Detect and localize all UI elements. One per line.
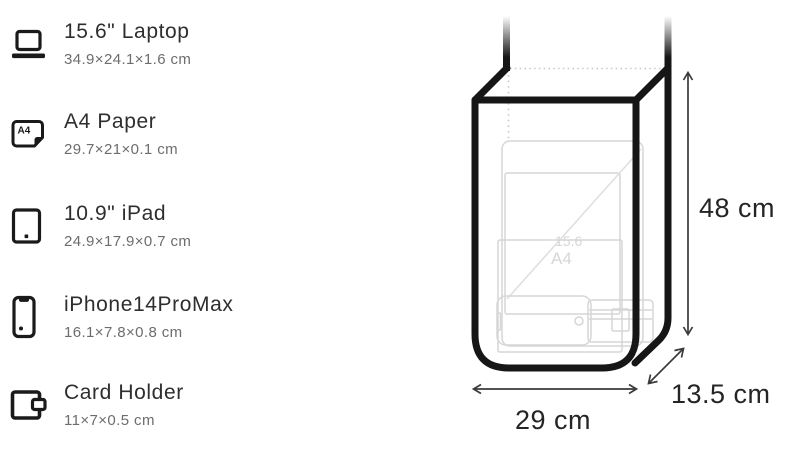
item-dims: 11×7×0.5 cm — [64, 412, 184, 429]
ghost-laptop-diagonal — [507, 149, 641, 299]
ghost-a4-label: A4 — [551, 249, 572, 268]
list-item: 10.9" iPad 24.9×17.9×0.7 cm — [10, 202, 191, 250]
bag-top-right-edge — [636, 68, 668, 100]
fits-inside-list: 15.6" Laptop 34.9×24.1×1.6 cm A4 A4 Pape… — [10, 0, 310, 455]
ghost-laptop-size-label: 15.6 — [555, 233, 582, 249]
item-name: 15.6" Laptop — [64, 20, 191, 44]
list-item: A4 A4 Paper 29.7×21×0.1 cm — [10, 110, 178, 158]
ghost-phone-button — [498, 313, 501, 330]
tablet-icon — [10, 207, 54, 245]
bag-top-left-edge — [475, 68, 507, 100]
list-item: iPhone14ProMax 16.1×7.8×0.8 cm — [10, 293, 234, 341]
item-name: A4 Paper — [64, 110, 178, 134]
item-dims: 34.9×24.1×1.6 cm — [64, 51, 191, 68]
item-name: 10.9" iPad — [64, 202, 191, 226]
item-dims: 29.7×21×0.1 cm — [64, 141, 178, 158]
depth-dimension-label: 13.5 cm — [671, 379, 771, 409]
list-item: 15.6" Laptop 34.9×24.1×1.6 cm — [10, 20, 191, 68]
item-name: iPhone14ProMax — [64, 293, 234, 317]
ghost-phone-camera — [575, 317, 583, 325]
bag-dimension-diagram: 15.6 A4 48 cm 29 cm 13.5 cm — [440, 0, 800, 455]
wallet-icon — [10, 389, 54, 422]
depth-arrow — [649, 349, 683, 383]
height-dimension-label: 48 cm — [699, 193, 775, 223]
strap-left — [503, 16, 510, 71]
width-dimension-label: 29 cm — [515, 405, 591, 435]
phone-icon — [10, 295, 54, 339]
item-dims: 16.1×7.8×0.8 cm — [64, 324, 234, 341]
a4-badge-label: A4 — [18, 126, 31, 137]
item-name: Card Holder — [64, 381, 184, 405]
ghost-phone — [497, 296, 591, 345]
a4-paper-icon: A4 — [10, 119, 54, 149]
list-item: Card Holder 11×7×0.5 cm — [10, 381, 184, 429]
laptop-icon — [10, 27, 54, 61]
bag-outline — [475, 66, 668, 368]
item-dims: 24.9×17.9×0.7 cm — [64, 233, 191, 250]
